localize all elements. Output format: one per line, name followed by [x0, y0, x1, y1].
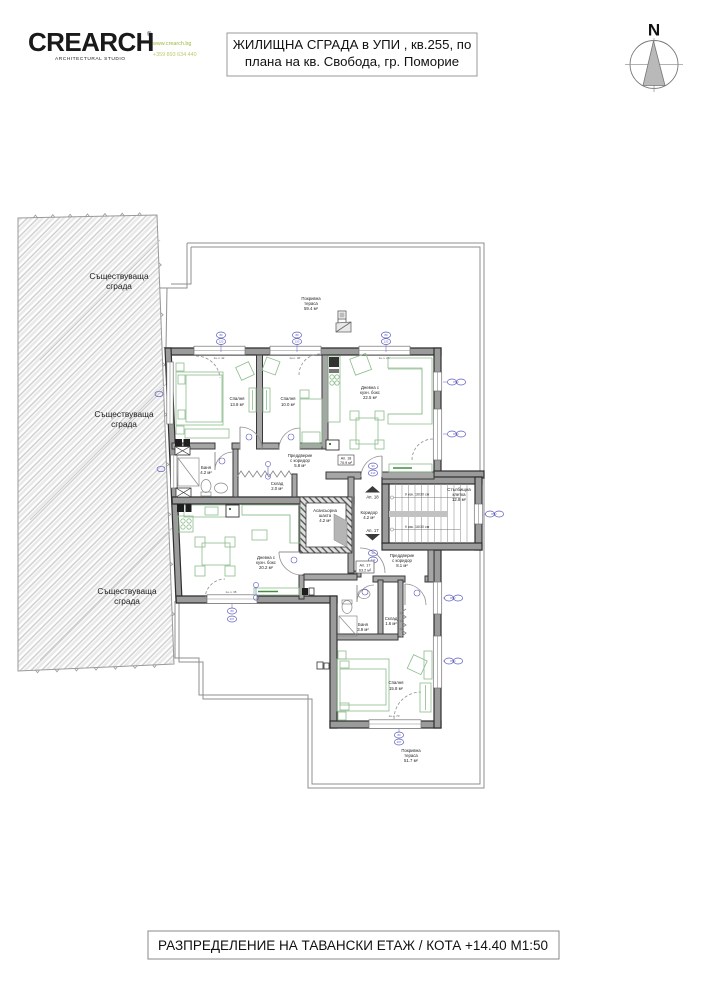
- svg-text:CREARCH: CREARCH: [28, 27, 154, 57]
- svg-text:Съществуваща: Съществуваща: [89, 271, 149, 281]
- svg-text:1н.л. 42: 1н.л. 42: [214, 356, 225, 360]
- svg-text:Ап. 17: Ап. 17: [366, 528, 379, 533]
- svg-text:8.1 м²: 8.1 м²: [396, 563, 408, 568]
- svg-text:85 2: 85 2: [450, 659, 456, 663]
- svg-text:4.2 м²: 4.2 м²: [319, 518, 331, 523]
- svg-text:Ап. 18: Ап. 18: [366, 495, 379, 500]
- svg-text:20.2 м²: 20.2 м²: [259, 565, 274, 570]
- svg-text:9 изк. 16/30 см: 9 изк. 16/30 см: [405, 525, 430, 529]
- svg-text:плана на кв. Свобода, гр. Помо: плана на кв. Свобода, гр. Поморие: [245, 54, 459, 69]
- svg-text:4.2 м²: 4.2 м²: [200, 470, 212, 475]
- svg-text:22.5 м²: 22.5 м²: [363, 395, 378, 400]
- svg-text:Съществуваща: Съществуваща: [97, 586, 157, 596]
- svg-text:ЖИЛИЩНА СГРАДА в УПИ , кв.255,: ЖИЛИЩНА СГРАДА в УПИ , кв.255, по: [233, 37, 472, 52]
- svg-text:1.6 м²: 1.6 м²: [385, 621, 397, 626]
- svg-text:207: 207: [397, 740, 402, 744]
- svg-text:120: 120: [295, 340, 300, 344]
- svg-text:80: 80: [219, 333, 223, 337]
- svg-text:63.2 м²: 63.2 м²: [359, 568, 372, 572]
- svg-text:85 2: 85 2: [453, 380, 459, 384]
- svg-text:51.7 м²: 51.7 м²: [404, 758, 419, 763]
- svg-text:80: 80: [295, 333, 299, 337]
- svg-text:Съществуваща: Съществуваща: [94, 409, 154, 419]
- svg-text:2.0 м²: 2.0 м²: [271, 486, 283, 491]
- svg-text:сграда: сграда: [106, 281, 132, 291]
- svg-text:59.4 м²: 59.4 м²: [304, 306, 319, 311]
- svg-text:120: 120: [219, 340, 224, 344]
- svg-text:207: 207: [230, 617, 235, 621]
- svg-text:12.8 м²: 12.8 м²: [452, 497, 467, 502]
- svg-text:15.8 м²: 15.8 м²: [389, 686, 404, 691]
- svg-text:120: 120: [384, 340, 389, 344]
- svg-text:сграда: сграда: [111, 419, 137, 429]
- svg-text:1н.л. 38: 1н.л. 38: [226, 590, 237, 594]
- svg-text:80: 80: [230, 609, 234, 613]
- svg-text:Ап. 18: Ап. 18: [341, 457, 352, 461]
- svg-text:N: N: [648, 21, 660, 40]
- svg-text:80: 80: [384, 333, 388, 337]
- svg-text:4.2 м²: 4.2 м²: [363, 515, 375, 520]
- svg-text:ARCHITECTURAL STUDIO: ARCHITECTURAL STUDIO: [55, 56, 126, 62]
- svg-text:13.8 м²: 13.8 м²: [230, 402, 245, 407]
- svg-text:80: 80: [397, 733, 401, 737]
- svg-text:1н.л. 46': 1н.л. 46': [289, 356, 301, 360]
- svg-text:5.8 м²: 5.8 м²: [294, 463, 306, 468]
- svg-text:3.9 м²: 3.9 м²: [357, 627, 369, 632]
- svg-text:Ап. 17: Ап. 17: [360, 563, 371, 567]
- svg-text:85 2: 85 2: [450, 596, 456, 600]
- svg-text:®: ®: [147, 31, 152, 38]
- svg-text:РАЗПРЕДЕЛЕНИЕ НА ТАВАНСКИ ЕТАЖ: РАЗПРЕДЕЛЕНИЕ НА ТАВАНСКИ ЕТАЖ / КОТА +1…: [158, 938, 548, 953]
- svg-text:90: 90: [371, 464, 375, 468]
- svg-text:70.9 м²: 70.9 м²: [340, 461, 353, 465]
- svg-text:сграда: сграда: [114, 596, 140, 606]
- svg-text:10.0 м²: 10.0 м²: [281, 402, 296, 407]
- svg-text:Спалня: Спалня: [229, 396, 245, 401]
- svg-text:210: 210: [371, 471, 376, 475]
- svg-text:85 2: 85 2: [453, 432, 459, 436]
- svg-text:Спалня: Спалня: [280, 396, 296, 401]
- svg-text:90: 90: [371, 551, 375, 555]
- svg-text:Спалня: Спалня: [388, 680, 404, 685]
- svg-text:9 изк. 16/30 см: 9 изк. 16/30 см: [405, 493, 430, 497]
- svg-text:www.crearch.bg: www.crearch.bg: [152, 41, 191, 47]
- svg-text:+359 893 634 440: +359 893 634 440: [153, 52, 197, 58]
- svg-text:85 2: 85 2: [491, 512, 497, 516]
